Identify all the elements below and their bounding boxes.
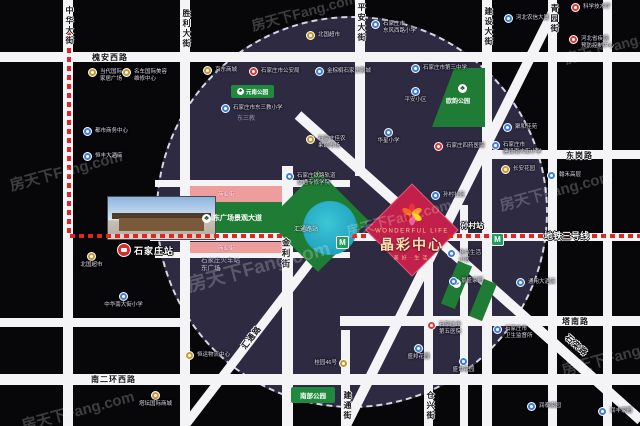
road-label-jinli: 金利街	[280, 238, 292, 270]
poi-label: 华星小学	[377, 138, 399, 145]
road-label-shengli: 胜利大街	[181, 9, 192, 49]
community-poi-icon	[547, 171, 556, 180]
public-poi-icon	[434, 142, 443, 151]
community-poi-icon	[516, 278, 525, 287]
watermark: 房天下Fang.com	[19, 385, 136, 426]
map-poi: 石家庄市东风西路小学	[371, 20, 380, 34]
map-poi: 聚和佳苑	[503, 123, 512, 132]
metro-line3-seg1	[70, 234, 283, 238]
place-dongsanjiao: 东三教	[237, 113, 255, 122]
park-ouyun-label: 欧韵公园	[446, 96, 470, 105]
shopping-poi-icon	[306, 31, 315, 40]
poi-label: 石家庄铁路轨道交通专修学院	[297, 173, 336, 186]
road-label-qingyuan: 青园街	[549, 4, 560, 34]
road-jianshe	[482, 0, 492, 426]
community-poi-icon	[504, 14, 513, 23]
map-poi: 石家庄市第五医院	[427, 321, 436, 335]
map-poi: 当代国际家居广场	[88, 68, 97, 82]
road-label-cangxing: 仓兴街	[425, 391, 436, 421]
community-poi-icon	[221, 104, 230, 113]
shopping-poi-icon	[501, 165, 510, 174]
poi-label: 石家庄市第五医院	[439, 322, 461, 335]
boulevard-label: ♣ 东广场景观大道	[202, 213, 262, 223]
railway-station-label: 石家庄站	[134, 244, 174, 257]
poi-label: 盛世花园	[452, 367, 474, 374]
poi-label: 河北省疾病预防控制中心	[581, 36, 614, 49]
map-poi: 名车国际美容维修中心	[122, 68, 131, 82]
poi-label: 石家庄市东三教小学	[233, 105, 283, 112]
poi-label: 桂园46号	[314, 360, 337, 367]
metro-line3-label: 地铁三号线	[544, 229, 589, 242]
poi-label: 都市商务中心	[95, 128, 128, 135]
poi-label: 河北农信大厦	[516, 15, 549, 22]
map-poi: 恒运物流中心	[185, 351, 194, 360]
metro-line3-seg2	[352, 234, 366, 238]
map-poi: 石家庄市东三教小学	[221, 104, 230, 113]
community-poi-icon	[83, 152, 92, 161]
community-poi-icon	[285, 172, 294, 181]
station-huitonglu-label: 汇通路站	[294, 224, 318, 233]
project-logo-icon	[399, 201, 425, 227]
poi-label: 景盛家园	[461, 278, 483, 285]
poi-label: 科学技术厅	[583, 4, 611, 11]
shopping-poi-icon	[339, 359, 348, 368]
shopping-poi-icon	[122, 68, 131, 77]
metro-station-icon: M	[491, 233, 504, 246]
poi-label: 盛邦花园	[407, 354, 429, 361]
scenic-avenue-icon: ♣	[202, 214, 211, 223]
poi-label: 通用大酒店	[528, 279, 556, 286]
shopping-poi-icon	[151, 391, 160, 400]
map-poi: 润丰家园	[598, 407, 607, 416]
shopping-poi-icon	[88, 68, 97, 77]
map-poi: 金棕榈石家庄影城	[315, 67, 324, 76]
poi-label: 京东商城	[215, 67, 237, 74]
road-qingyuan	[548, 0, 557, 426]
road-label-jianshe: 建设大街	[483, 7, 494, 47]
map-poi: 盛世花园	[459, 357, 468, 366]
community-poi-icon	[491, 141, 500, 150]
public-poi-icon	[569, 35, 578, 44]
poi-label: 当代国际家居广场	[100, 69, 122, 82]
map-poi: 仓兴生活小区	[447, 249, 456, 263]
poi-label: 石家庄佳农果蔬市场	[318, 136, 346, 149]
poi-label: 仓兴生活小区	[459, 250, 481, 263]
map-poi: 恒丰大酒店	[83, 152, 92, 161]
map-poi: 润泰家园	[527, 402, 536, 411]
shopping-poi-icon	[306, 135, 315, 144]
east-square-caption: 石家庄火车站 东广场	[201, 257, 240, 272]
map-poi: 都市商务中心	[83, 127, 92, 136]
poi-label: 石家庄市第三中学	[423, 65, 467, 72]
poi-label: 北国超市	[80, 262, 102, 269]
project-name: 晶彩中心	[380, 234, 444, 254]
park-yuannan: ♣ 元南公园	[231, 85, 274, 98]
metro-line3-vertical	[67, 30, 71, 237]
community-poi-icon	[449, 277, 458, 286]
public-poi-icon	[427, 321, 436, 330]
map-poi: 长安花园	[501, 165, 510, 174]
poi-label: 石家庄市建设南大街小学	[503, 142, 542, 155]
community-poi-icon	[598, 407, 607, 416]
poi-label: 聚和佳苑	[515, 124, 537, 131]
project-slogan: 美好·生活	[394, 254, 431, 261]
community-poi-icon	[503, 123, 512, 132]
community-poi-icon	[527, 402, 536, 411]
community-poi-icon	[119, 292, 128, 301]
map-poi: 石家庄四药医院	[434, 142, 443, 151]
community-poi-icon	[315, 67, 324, 76]
poi-label: 恒运物流中心	[197, 352, 230, 359]
city-map: 商业街 商业街 ♣ 东广场景观大道 石家庄火车站 东广场 ♣ 元南公园 ♣ 欧韵…	[0, 0, 640, 426]
road-left-mid	[0, 318, 190, 327]
poi-label: 石家庄市东风西路小学	[383, 21, 416, 34]
map-poi: 北国超市	[87, 252, 96, 261]
poi-label: 石家庄四药医院	[446, 143, 485, 150]
road-label-zhonghua: 中华大街	[64, 6, 75, 46]
community-poi-icon	[431, 191, 440, 200]
community-poi-icon	[447, 249, 456, 258]
map-poi: 华星小学	[384, 128, 393, 137]
road-label-jiantong: 建通街	[342, 391, 353, 421]
public-poi-icon	[571, 3, 580, 12]
community-poi-icon	[384, 128, 393, 137]
poi-label: 翰禾高层	[559, 172, 581, 179]
community-poi-icon	[414, 344, 423, 353]
poi-label: 长安花园	[513, 166, 535, 173]
map-poi: 石家庄市卫生监督所	[493, 325, 502, 339]
commercial-band-south: 商业街	[190, 242, 282, 253]
poi-label: 石家庄市卫生监督所	[505, 326, 533, 339]
map-poi: 石家庄市建设南大街小学	[491, 141, 500, 155]
poi-label: 北国超市	[318, 32, 340, 39]
road-label-tanan: 塔南路	[562, 316, 589, 327]
map-poi: 孙村社区	[431, 191, 440, 200]
community-poi-icon	[411, 64, 420, 73]
commercial-street-label: 商业街	[218, 244, 235, 252]
community-poi-icon	[459, 357, 468, 366]
community-poi-icon	[83, 127, 92, 136]
road-label-donggang: 东岗路	[566, 150, 593, 161]
map-poi: 盛邦花园	[414, 344, 423, 353]
poi-label: 润泰家园	[539, 403, 561, 410]
park-nanbu: 南部公园	[291, 387, 335, 403]
map-poi: 中华南大街小学	[119, 292, 128, 301]
poi-label: 石家庄市公安局	[261, 68, 300, 75]
shopping-poi-icon	[203, 66, 212, 75]
map-poi: 塔坛国际商城	[151, 391, 160, 400]
road-minor-v2	[603, 0, 612, 426]
park-icon: ♣	[237, 88, 244, 95]
map-poi: 京东商城	[203, 66, 212, 75]
map-poi: 桂园46号	[339, 359, 348, 368]
road-label-huaianxi: 槐安西路	[92, 52, 128, 63]
road-tanan	[340, 316, 640, 326]
shopping-poi-icon	[87, 252, 96, 261]
community-poi-icon	[493, 325, 502, 334]
poi-label: 平安小区	[404, 97, 426, 104]
road-label-pingan: 平安大街	[356, 3, 367, 43]
shopping-poi-icon	[185, 351, 194, 360]
poi-label: 金棕榈石家庄影城	[327, 68, 371, 75]
map-poi: 石家庄佳农果蔬市场	[306, 135, 315, 149]
metro-station-icon: M	[336, 236, 349, 249]
poi-label: 名车国际美容维修中心	[134, 69, 167, 82]
map-poi: 平安小区	[411, 87, 420, 96]
community-poi-icon	[411, 87, 420, 96]
map-poi: 北国超市	[306, 31, 315, 40]
map-poi: 景盛家园	[449, 277, 458, 286]
poi-label: 孙村社区	[443, 192, 465, 199]
map-poi: 科学技术厅	[571, 3, 580, 12]
map-poi: 石家庄市第三中学	[411, 64, 420, 73]
road-label-nanerhuan: 南二环西路	[91, 374, 136, 385]
map-poi: 石家庄铁路轨道交通专修学院	[285, 172, 294, 186]
poi-label: 恒丰大酒店	[95, 153, 123, 160]
map-poi: 石家庄市公安局	[249, 67, 258, 76]
railway-station-icon	[117, 243, 131, 257]
park-icon: ♣	[458, 84, 467, 93]
map-poi: 翰禾高层	[547, 171, 556, 180]
station-suncun-label: 孙村站	[461, 220, 484, 231]
map-poi: 河北农信大厦	[504, 14, 513, 23]
poi-label: 塔坛国际商城	[139, 401, 172, 408]
map-poi: 河北省疾病预防控制中心	[569, 35, 578, 49]
commercial-street-label: 商业街	[218, 190, 235, 198]
poi-label: 润丰家园	[610, 408, 632, 415]
poi-label: 中华南大街小学	[104, 302, 143, 309]
public-poi-icon	[249, 67, 258, 76]
community-poi-icon	[371, 20, 380, 29]
map-poi: 通用大酒店	[516, 278, 525, 287]
